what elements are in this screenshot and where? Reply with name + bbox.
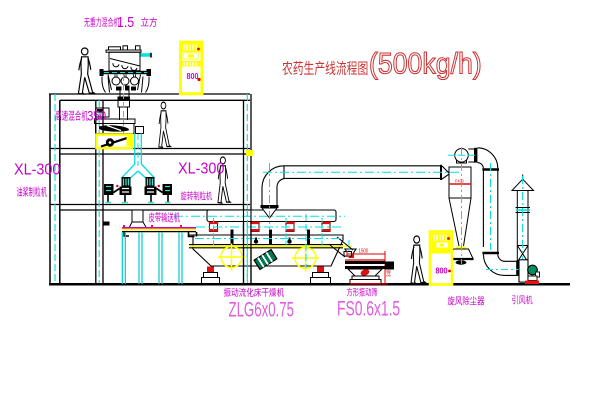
svg-text:ZLG6x0.75: ZLG6x0.75 (229, 297, 295, 321)
svg-text:XL-300: XL-300 (14, 161, 60, 179)
svg-text:高速混合机: 高速混合机 (55, 109, 88, 122)
svg-text:引风机: 引风机 (512, 294, 534, 305)
svg-text:油桨制粒机: 油桨制粒机 (17, 184, 48, 197)
svg-text:FS0.6x1.5: FS0.6x1.5 (337, 297, 400, 321)
svg-text:农药生产线流程图: 农药生产线流程图 (282, 60, 368, 77)
svg-text:无重力混合机: 无重力混合机 (84, 16, 120, 28)
svg-text:800: 800 (187, 72, 199, 81)
svg-text:立方: 立方 (141, 16, 158, 28)
svg-text:1500: 1500 (359, 248, 369, 255)
svg-text:旋风除尘器: 旋风除尘器 (448, 296, 485, 307)
svg-text:旋转制粒机: 旋转制粒机 (181, 190, 213, 202)
svg-text:340: 340 (386, 269, 393, 277)
svg-text:皮带输送机: 皮带输送机 (149, 210, 181, 223)
svg-text:800: 800 (436, 266, 448, 275)
svg-text:XL-300: XL-300 (178, 160, 224, 178)
svg-text:350: 350 (87, 107, 106, 123)
svg-text:P400: P400 (455, 178, 464, 184)
svg-text:1.5: 1.5 (117, 14, 134, 30)
svg-text:(500kg/h): (500kg/h) (369, 47, 482, 81)
